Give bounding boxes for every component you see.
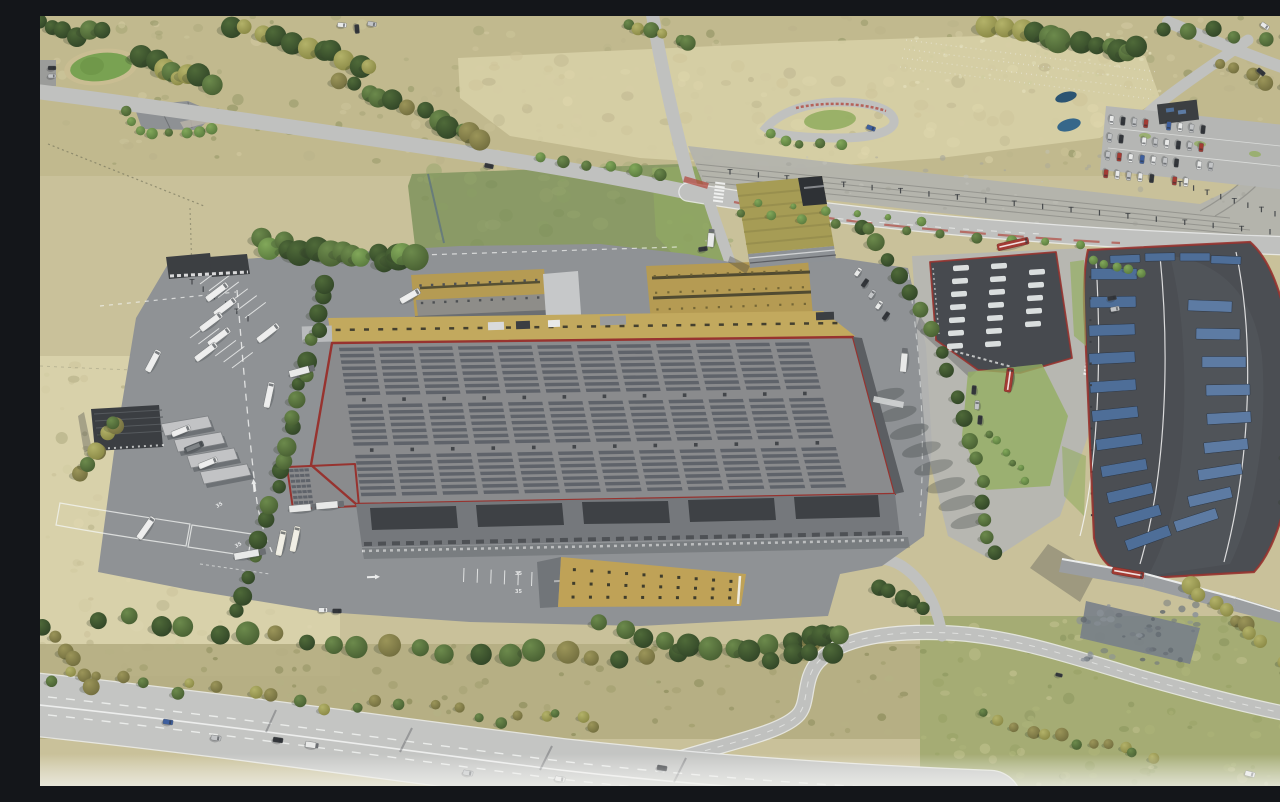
dock-canopy-1 — [370, 506, 458, 530]
roof-unit-4 — [600, 316, 626, 326]
dock-canopy-2 — [476, 503, 564, 527]
stall-number: 35 — [515, 589, 522, 595]
svg-text:35: 35 — [515, 571, 522, 577]
roof-unit-3 — [548, 320, 560, 327]
roof-unit-5 — [816, 312, 834, 321]
dock-canopy-5 — [794, 495, 880, 519]
bottom-fade — [40, 754, 1280, 786]
office-roof-deck — [798, 176, 827, 206]
aerial-rendering-screenshot: Aerial rendering of bus depot and indust… — [40, 16, 1280, 786]
roof-unit-1 — [488, 322, 504, 331]
stall-number: 35 — [515, 571, 522, 577]
dock-canopy-4 — [688, 498, 776, 522]
dock-canopy-3 — [582, 501, 670, 524]
aerial-site-rendering-canvas: 35353535 — [40, 16, 1280, 786]
small-lot-topleft — [40, 60, 56, 86]
scene-root: 35353535 — [40, 16, 1280, 786]
svg-text:35: 35 — [515, 589, 522, 595]
hall-g-shadow — [537, 557, 561, 608]
roof-unit-2 — [516, 321, 530, 329]
